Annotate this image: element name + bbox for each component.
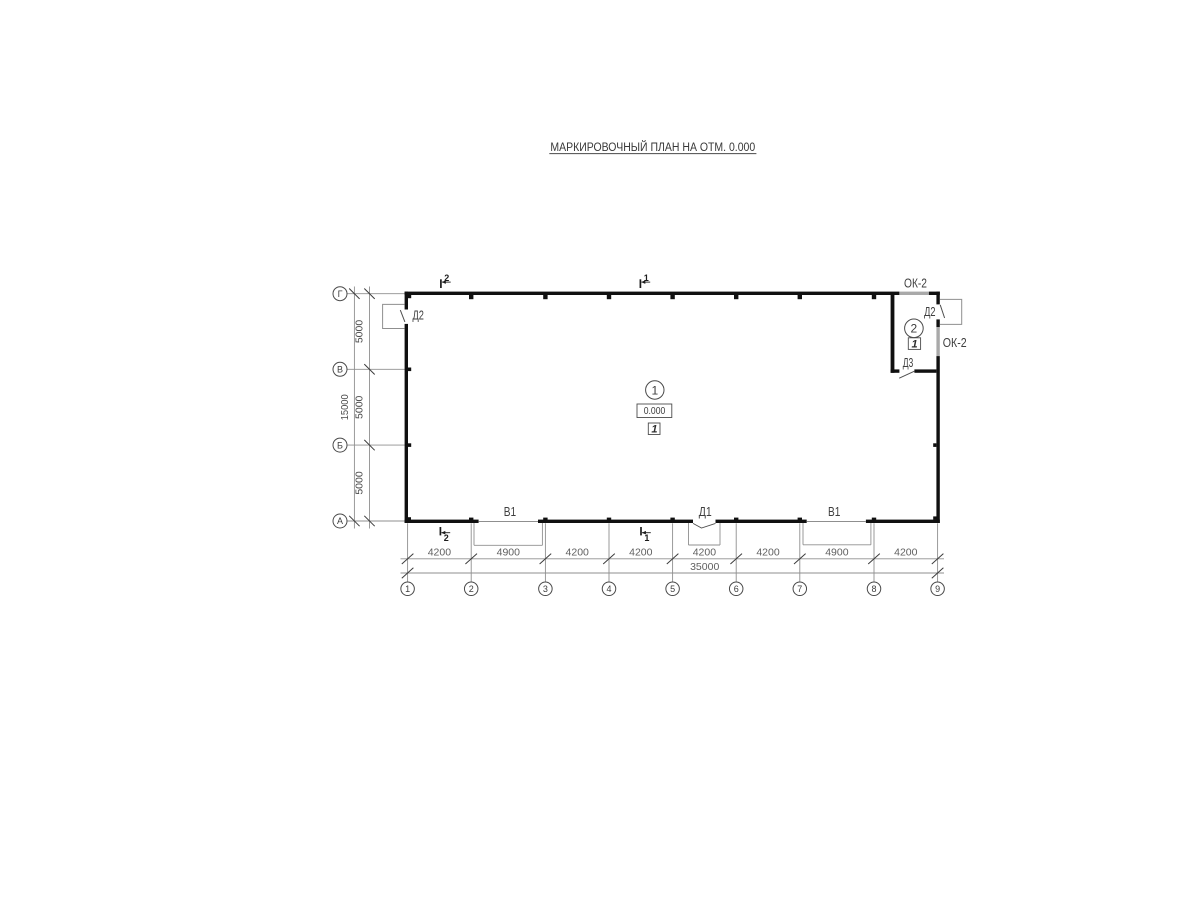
svg-text:5000: 5000 xyxy=(353,471,365,495)
svg-text:4200: 4200 xyxy=(566,547,590,559)
svg-text:35000: 35000 xyxy=(690,561,719,573)
svg-text:15000: 15000 xyxy=(339,394,351,420)
svg-text:6: 6 xyxy=(734,584,739,594)
svg-text:Д2: Д2 xyxy=(924,305,935,319)
svg-text:Б: Б xyxy=(337,440,343,450)
svg-text:4200: 4200 xyxy=(629,547,653,559)
svg-text:Д1: Д1 xyxy=(699,505,712,519)
svg-text:5: 5 xyxy=(670,584,675,594)
svg-text:ОК-2: ОК-2 xyxy=(943,336,967,350)
svg-text:В: В xyxy=(337,365,343,375)
svg-text:5000: 5000 xyxy=(353,395,365,419)
svg-text:1: 1 xyxy=(651,424,657,436)
svg-text:4200: 4200 xyxy=(693,547,717,559)
svg-text:Г: Г xyxy=(338,289,343,299)
svg-text:4: 4 xyxy=(606,584,611,594)
svg-text:8: 8 xyxy=(871,584,876,594)
svg-text:4900: 4900 xyxy=(497,547,521,559)
svg-text:3: 3 xyxy=(543,584,548,594)
svg-text:Д3: Д3 xyxy=(903,356,914,370)
svg-text:МАРКИРОВОЧНЫЙ ПЛАН НА ОТМ. 0.0: МАРКИРОВОЧНЫЙ ПЛАН НА ОТМ. 0.000 xyxy=(550,139,755,154)
svg-text:2: 2 xyxy=(469,584,474,594)
svg-text:5000: 5000 xyxy=(353,320,365,344)
svg-text:2: 2 xyxy=(911,322,918,336)
svg-text:4200: 4200 xyxy=(894,547,918,559)
svg-text:В1: В1 xyxy=(828,505,840,519)
svg-text:В1: В1 xyxy=(504,505,516,519)
svg-text:1: 1 xyxy=(912,339,918,351)
svg-text:7: 7 xyxy=(797,584,802,594)
svg-text:4200: 4200 xyxy=(756,547,780,559)
svg-text:1: 1 xyxy=(651,383,658,397)
svg-text:4200: 4200 xyxy=(428,547,452,559)
svg-text:1: 1 xyxy=(405,584,410,594)
svg-text:1: 1 xyxy=(644,533,649,543)
svg-text:А: А xyxy=(337,516,343,526)
svg-text:1: 1 xyxy=(644,273,649,283)
svg-text:4900: 4900 xyxy=(825,547,849,559)
svg-text:9: 9 xyxy=(935,584,940,594)
svg-text:Д2: Д2 xyxy=(413,308,424,322)
svg-text:2: 2 xyxy=(444,533,449,543)
svg-text:ОК-2: ОК-2 xyxy=(904,277,927,291)
svg-text:0.000: 0.000 xyxy=(644,406,666,417)
svg-text:2: 2 xyxy=(444,273,449,283)
